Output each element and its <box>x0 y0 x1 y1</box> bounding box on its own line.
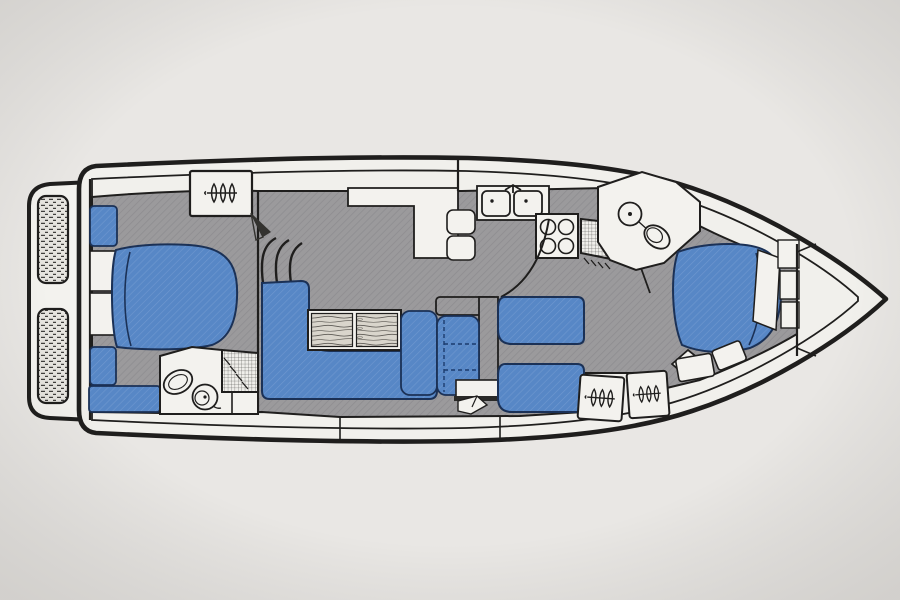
boat-floor-plan <box>0 0 900 600</box>
screenshot-root <box>0 0 900 600</box>
vignette-overlay <box>0 0 900 600</box>
